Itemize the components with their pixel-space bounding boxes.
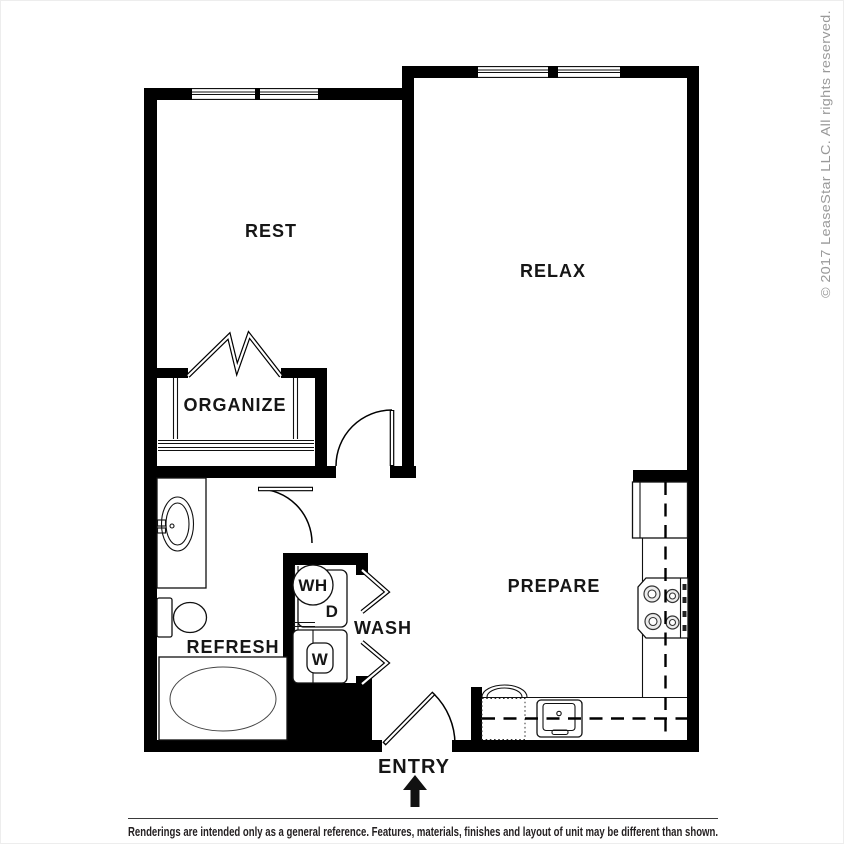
wall-closet-top-left	[144, 368, 188, 378]
wall-chase-block	[283, 683, 372, 752]
wall-divider-rest-relax	[402, 100, 414, 466]
room-label-prepare: PREPARE	[508, 576, 601, 596]
toilet-bowl-icon	[174, 603, 207, 633]
floor-plan-drawing: WH D W	[0, 0, 844, 844]
wall-laundry-top	[283, 553, 368, 565]
room-label-rest: REST	[245, 221, 297, 241]
wall-top-relax	[402, 66, 699, 78]
wall-bathroom-top	[144, 466, 315, 478]
laundry-fixtures: WH D W	[293, 565, 347, 683]
room-label-relax: RELAX	[520, 261, 586, 281]
entry-label: ENTRY	[378, 756, 450, 778]
room-label-refresh: REFRESH	[186, 637, 279, 657]
window-relax-1	[478, 66, 548, 78]
washer-label: W	[312, 650, 329, 669]
refrigerator-icon	[633, 482, 688, 538]
wall-divider-foot	[390, 466, 416, 478]
wall-counter-end	[471, 687, 482, 740]
stove-icon	[638, 578, 688, 638]
wall-closet-right	[315, 368, 327, 466]
disclaimer-text: Renderings are intended only as a genera…	[128, 824, 718, 839]
window-relax-2	[558, 66, 620, 78]
toilet-tank	[157, 598, 172, 637]
wall-right	[687, 66, 699, 752]
water-heater-label: WH	[298, 576, 327, 595]
wall-fridge-stub	[633, 470, 687, 482]
window-rest-1	[192, 88, 255, 100]
window-rest-2	[260, 88, 318, 100]
background	[0, 0, 844, 844]
room-label-organize: ORGANIZE	[183, 395, 286, 415]
dryer-label: D	[326, 602, 339, 621]
copyright-text: © 2017 LeaseStar LLC. All rights reserve…	[819, 10, 833, 298]
floor-plan-page: WH D W	[0, 0, 844, 844]
room-label-wash: WASH	[354, 618, 412, 638]
wall-left	[144, 88, 157, 752]
bathtub-surround	[159, 657, 287, 740]
wall-bottom-right	[452, 740, 699, 752]
